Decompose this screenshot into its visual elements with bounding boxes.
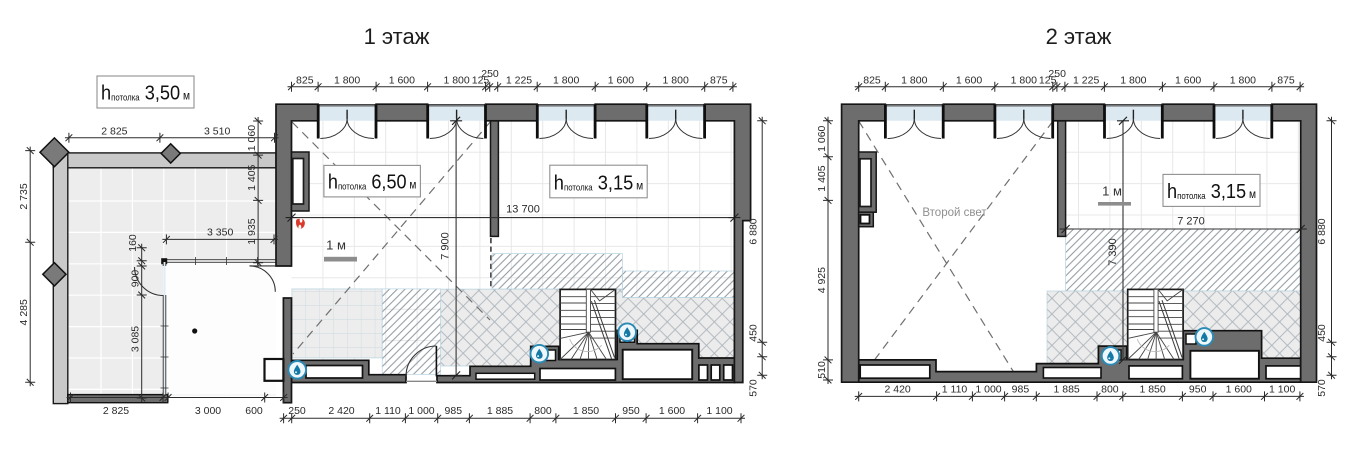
svg-text:160: 160 <box>127 234 139 252</box>
svg-text:985: 985 <box>1012 383 1030 395</box>
svg-text:1 000: 1 000 <box>408 405 434 417</box>
svg-text:3 510: 3 510 <box>204 126 230 138</box>
svg-text:1 600: 1 600 <box>659 405 685 417</box>
svg-text:1 этаж: 1 этаж <box>364 24 430 49</box>
svg-text:1 885: 1 885 <box>487 405 513 417</box>
svg-text:7 900: 7 900 <box>440 232 452 260</box>
svg-text:1 405: 1 405 <box>816 165 828 191</box>
svg-text:950: 950 <box>1189 383 1207 395</box>
svg-text:900: 900 <box>130 270 142 288</box>
svg-text:1 800: 1 800 <box>443 75 469 87</box>
svg-text:3 085: 3 085 <box>130 326 142 352</box>
svg-text:1 800: 1 800 <box>1120 75 1146 87</box>
svg-text:1 935: 1 935 <box>246 218 258 244</box>
svg-text:1 110: 1 110 <box>375 405 401 417</box>
svg-text:6 880: 6 880 <box>1316 218 1328 244</box>
svg-text:450: 450 <box>748 324 760 342</box>
svg-text:2 825: 2 825 <box>103 405 129 417</box>
svg-text:1 885: 1 885 <box>1054 383 1080 395</box>
svg-text:1 м: 1 м <box>1102 184 1122 199</box>
svg-text:1 600: 1 600 <box>1226 383 1252 395</box>
svg-text:875: 875 <box>1277 75 1295 87</box>
svg-text:1 600: 1 600 <box>956 75 982 87</box>
svg-text:250: 250 <box>288 405 306 417</box>
svg-text:1 225: 1 225 <box>1073 75 1099 87</box>
svg-text:1 м: 1 м <box>326 238 346 253</box>
svg-text:1 800: 1 800 <box>663 75 689 87</box>
svg-text:570: 570 <box>748 379 760 397</box>
svg-text:1 800: 1 800 <box>1230 75 1256 87</box>
svg-text:2 420: 2 420 <box>885 383 911 395</box>
svg-text:1 800: 1 800 <box>334 75 360 87</box>
svg-text:3 350: 3 350 <box>207 226 233 238</box>
svg-text:1 600: 1 600 <box>1175 75 1201 87</box>
svg-text:1 850: 1 850 <box>1139 383 1165 395</box>
svg-text:800: 800 <box>534 405 552 417</box>
svg-text:250: 250 <box>481 68 499 80</box>
svg-text:1 100: 1 100 <box>706 405 732 417</box>
svg-text:1 600: 1 600 <box>389 75 415 87</box>
svg-text:2 этаж: 2 этаж <box>1046 24 1112 49</box>
svg-text:250: 250 <box>1048 68 1066 80</box>
svg-text:1 600: 1 600 <box>608 75 634 87</box>
svg-text:1 800: 1 800 <box>1011 75 1037 87</box>
svg-text:1 060: 1 060 <box>816 125 828 151</box>
svg-text:1 225: 1 225 <box>506 75 532 87</box>
svg-text:985: 985 <box>445 405 463 417</box>
svg-text:2 825: 2 825 <box>101 126 127 138</box>
svg-text:1 800: 1 800 <box>553 75 579 87</box>
svg-text:4 925: 4 925 <box>816 267 828 293</box>
svg-text:950: 950 <box>622 405 640 417</box>
svg-text:570: 570 <box>1316 379 1328 397</box>
svg-text:3 000: 3 000 <box>195 405 221 417</box>
svg-text:825: 825 <box>296 75 314 87</box>
svg-text:6 880: 6 880 <box>748 218 760 244</box>
svg-text:4 285: 4 285 <box>18 299 30 325</box>
svg-text:875: 875 <box>710 75 728 87</box>
svg-text:2 420: 2 420 <box>328 405 354 417</box>
svg-text:825: 825 <box>863 75 881 87</box>
svg-text:7 390: 7 390 <box>1107 238 1119 266</box>
svg-text:1 100: 1 100 <box>1269 383 1295 395</box>
svg-text:2 735: 2 735 <box>18 183 30 209</box>
svg-text:1 405: 1 405 <box>246 164 258 190</box>
svg-text:1 110: 1 110 <box>942 383 968 395</box>
svg-text:7 270: 7 270 <box>1177 216 1205 228</box>
svg-text:800: 800 <box>1101 383 1119 395</box>
svg-text:510: 510 <box>816 361 828 379</box>
svg-text:1 800: 1 800 <box>901 75 927 87</box>
svg-text:600: 600 <box>245 405 263 417</box>
svg-text:1 000: 1 000 <box>975 383 1001 395</box>
svg-text:450: 450 <box>1316 324 1328 342</box>
svg-text:1 850: 1 850 <box>573 405 599 417</box>
svg-text:13 700: 13 700 <box>506 204 540 216</box>
svg-text:Второй свет: Второй свет <box>922 207 987 219</box>
